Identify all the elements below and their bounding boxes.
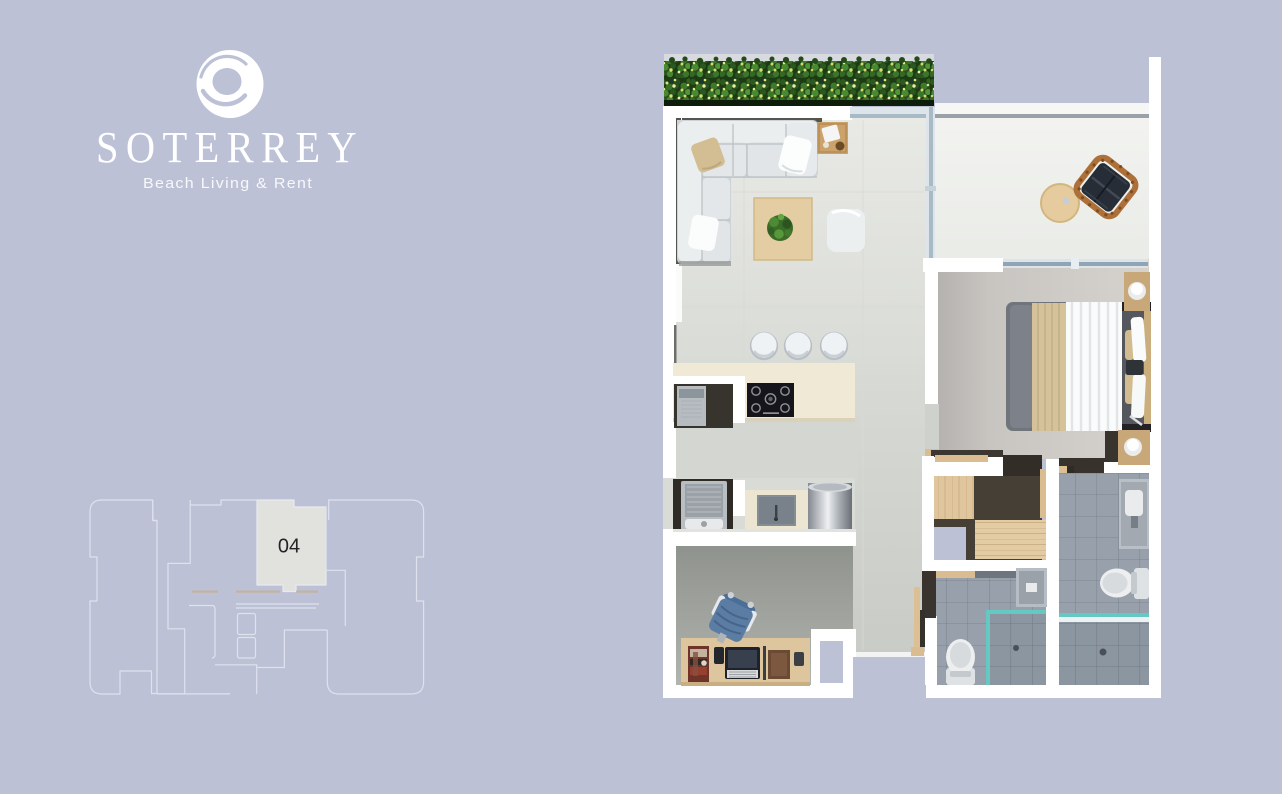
svg-text:Beach Living & Rent: Beach Living & Rent: [143, 176, 313, 192]
svg-text:SOTERREY: SOTERREY: [96, 123, 364, 172]
svg-text:04: 04: [278, 536, 300, 558]
